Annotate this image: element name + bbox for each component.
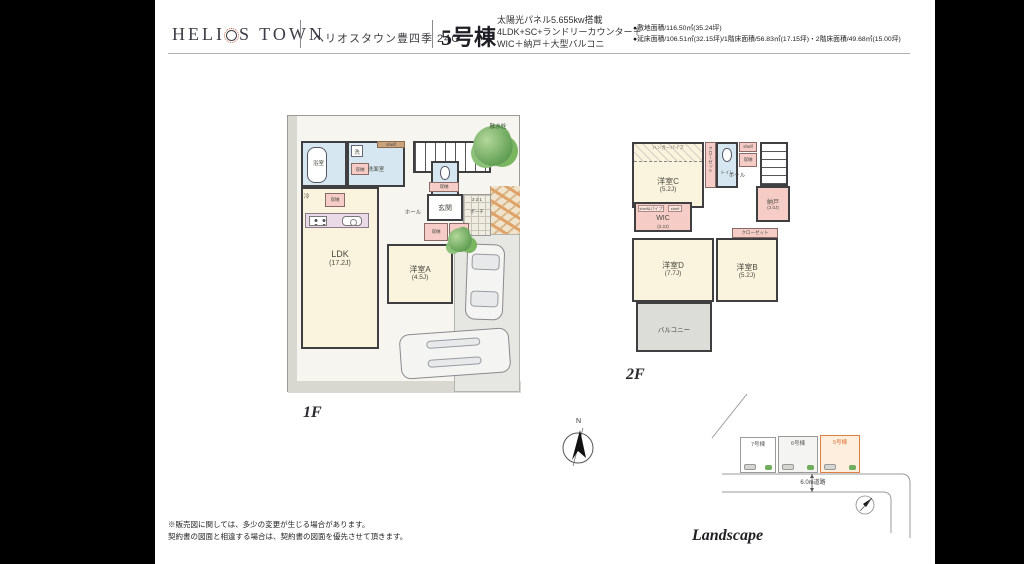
hanger-pipe-area: ハンガーパイプ [634, 144, 702, 162]
hall-label-1f: ホール [398, 208, 428, 216]
ldk-area: (17.2J) [303, 260, 377, 267]
room-washroom-label: 洗面室 [349, 165, 403, 173]
mini-car-icon [744, 464, 756, 470]
brand-logo: HELIS TOWN [172, 24, 325, 45]
water-tap-label: 散水栓 [480, 122, 516, 130]
landscape-map: 7号棟 6号棟 5号棟 6.0m道路 [700, 388, 915, 550]
mini-green-icon [849, 465, 856, 470]
disclaimer-line1: ※販売図に関しては、多少の変更が生じる場合があります。 [168, 519, 407, 531]
helios-sun-icon [226, 30, 237, 41]
mini-green-icon [807, 465, 814, 470]
wic-shelf: shelf [668, 205, 682, 212]
washer-icon: 洗 [351, 145, 363, 157]
compass-north-label: N [576, 418, 581, 425]
content-panel: HELIS TOWN ヘリオスタウン豊四季 24G 5号棟 太陽光パネル5.65… [155, 0, 935, 564]
car-windshield [472, 253, 500, 270]
room-d: 洋室D (7.7J) [632, 238, 714, 302]
car-icon [399, 327, 512, 380]
floor1-label: 1F [303, 404, 322, 422]
lot-7: 7号棟 [740, 437, 776, 473]
shelf-strip: shelf [377, 141, 405, 148]
room-b-area: (5.2J) [718, 272, 776, 279]
shelf-pipe-label: shelf&パイプ [639, 206, 663, 212]
storage-label: 収納 [430, 184, 458, 190]
lot-6-label: 6号棟 [779, 439, 817, 447]
wic-label: WIC [636, 215, 690, 222]
room-c-area: (5.2J) [634, 186, 702, 193]
nando-area: (2.0J) [758, 205, 788, 210]
car-windshield [426, 337, 480, 349]
disclaimer: ※販売図に関しては、多少の変更が生じる場合があります。 契約書の図面と相違する場… [168, 519, 407, 543]
floor2-label: 2F [626, 366, 645, 384]
kitchen-counter [305, 213, 369, 228]
spec-solar: 太陽光パネル5.655kw搭載 [497, 14, 642, 26]
car-icon [465, 243, 506, 320]
room-b: 洋室B (5.2J) [716, 238, 778, 302]
room-bath: 浴室 [301, 141, 347, 187]
storage-label: 収納 [425, 229, 447, 235]
kitchen-storage: 収納 [325, 193, 345, 207]
hanger-label: ハンガーパイプ [634, 145, 702, 151]
site-area: ●敷地面積/116.50㎡(35.24坪) [633, 23, 901, 34]
tree-icon [448, 228, 472, 252]
stove-icon [309, 216, 327, 226]
disclaimer-line2: 契約書の図面と相違する場合は、契約書の図面を優先させて頂きます。 [168, 531, 407, 543]
lot-5-label: 5号棟 [821, 438, 859, 446]
project-name: ヘリオスタウン豊四季 24G [313, 30, 461, 46]
spec-layout: 4LDK+SC+ランドリーカウンター＋ [497, 26, 642, 38]
mini-green-icon [765, 465, 772, 470]
closet-label: クローゼット [733, 230, 777, 236]
room-a-area: (4.5J) [389, 274, 451, 281]
balcony-label: バルコニー [638, 324, 710, 334]
tree-icon [473, 126, 513, 166]
road-label: 6.0m道路 [785, 477, 841, 486]
room-c: ハンガーパイプ 洋室C (5.2J) [632, 142, 704, 208]
landscape-title: Landscape [692, 527, 763, 545]
hall-label-2f: ホール [720, 171, 754, 179]
sink-icon [342, 216, 362, 226]
porch-steps: 3 2 1 [464, 197, 490, 202]
room-ldk: 冷 収納 LDK (17.2J) [301, 187, 379, 349]
floor-plan-2f: ハンガーパイプ 洋室C (5.2J) クローゼット トイレ shelf 収納 ホ… [628, 138, 792, 356]
wic-shelf-pipe: shelf&パイプ [638, 205, 664, 212]
closet-2f: クローゼット [705, 142, 716, 188]
area-info: ●敷地面積/116.50㎡(35.24坪) ●延床面積/106.51㎡(32.1… [633, 23, 901, 45]
floor-area: ●延床面積/106.51㎡(32.15坪)/1階床面積/56.83㎡(17.15… [633, 34, 901, 45]
floor-plan-1f: 浴室 洗 収納 shelf 洗面室 トイレ ホール [287, 115, 520, 392]
room-toilet-2f: トイレ [716, 142, 738, 188]
stairs-2f [760, 142, 788, 186]
lot-6: 6号棟 [778, 436, 818, 473]
shelf-label: shelf [378, 142, 404, 147]
storage-box-2f: 収納 [739, 153, 757, 167]
wic-area: (2.2J) [636, 224, 690, 229]
unit-number: 5号棟 [441, 20, 496, 52]
closet-label: クローゼット [708, 146, 714, 173]
logo-text-pre: HELI [172, 24, 225, 44]
ldk-label: LDK [303, 249, 377, 259]
car-rear-window [427, 356, 481, 368]
car-rear-window [470, 290, 498, 307]
fridge-label: 冷 [304, 192, 316, 200]
entry-storage: 収納 [429, 182, 459, 192]
room-washroom: 洗 収納 shelf 洗面室 [347, 141, 405, 187]
unit-specs: 太陽光パネル5.655kw搭載 4LDK+SC+ランドリーカウンター＋ WIC＋… [497, 14, 642, 50]
room-bath-label: 浴室 [313, 159, 324, 167]
room-a: 洋室A (4.5J) [387, 244, 453, 304]
toilet-icon [722, 148, 732, 162]
balcony: バルコニー [636, 302, 712, 352]
storage-label: 収納 [326, 197, 344, 203]
logo-text-post: S TOWN [239, 24, 325, 44]
washer-label: 洗 [352, 148, 362, 156]
room-wic: shelf&パイプ shelf WIC (2.2J) [634, 202, 692, 232]
entry-label: 玄関 [429, 203, 461, 213]
mini-car-icon [782, 464, 794, 470]
header-rule [168, 53, 910, 54]
lot-5-highlighted: 5号棟 [820, 435, 860, 473]
lot-7-label: 7号棟 [741, 440, 775, 448]
page: HELIS TOWN ヘリオスタウン豊四季 24G 5号棟 太陽光パネル5.65… [0, 0, 1024, 564]
room-d-area: (7.7J) [634, 270, 712, 277]
closet-roomB: クローゼット [732, 228, 778, 238]
storage-label: 収納 [740, 157, 756, 163]
header-divider [432, 20, 433, 48]
spec-layout2: WIC＋納戸＋大型バルコニ [497, 38, 642, 50]
site-edge-left [288, 116, 297, 393]
closet-1f: 収納 [424, 223, 448, 241]
header-divider [300, 20, 301, 48]
mini-car-icon [824, 464, 836, 470]
shelf-label: shelf [669, 206, 681, 211]
compass-icon [556, 418, 600, 470]
room-entry: 玄関 [427, 194, 463, 221]
mini-compass-icon [852, 492, 878, 518]
shelf-box: shelf [739, 142, 757, 152]
shelf-label: shelf [740, 144, 756, 149]
compass: N [556, 418, 600, 470]
toilet-icon [440, 166, 450, 180]
room-nando: 納戸 (2.0J) [756, 186, 790, 222]
porch-label: ポーチ [464, 209, 490, 215]
